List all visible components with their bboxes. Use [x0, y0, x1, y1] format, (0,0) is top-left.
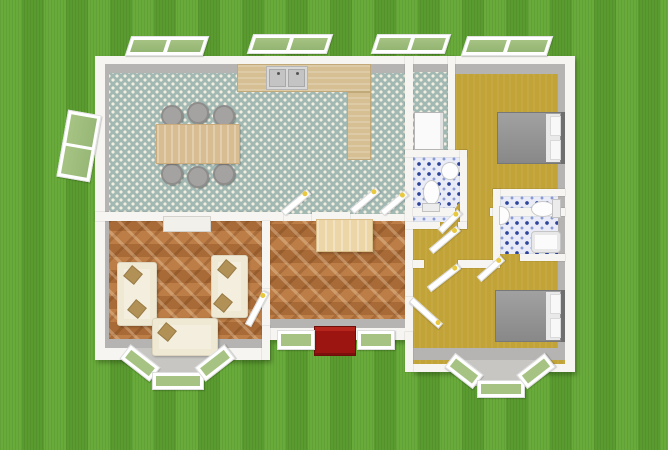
wall-shading [413, 64, 448, 72]
lawn-background [0, 0, 668, 450]
wall-shading [105, 221, 109, 348]
bed-headboard [561, 290, 565, 342]
dining-chair[interactable] [161, 163, 183, 185]
wall-segment [458, 222, 467, 229]
door-handle [259, 292, 266, 299]
door-handle [451, 227, 458, 234]
dining-chair[interactable] [187, 166, 209, 188]
bed-pillow [550, 116, 561, 136]
window-glass [507, 40, 548, 52]
wc-toilet-bowl[interactable] [423, 180, 440, 205]
wall-segment [448, 56, 455, 156]
window-glass [167, 40, 204, 52]
bay-window[interactable] [477, 380, 525, 398]
window-glass [411, 38, 446, 50]
awning-window[interactable] [461, 36, 553, 56]
tv-cabinet[interactable] [163, 216, 211, 232]
awning-window[interactable] [247, 34, 333, 54]
bathtub[interactable] [531, 231, 561, 253]
window-glass [66, 114, 97, 147]
window-glass [481, 384, 521, 394]
entrance-window[interactable] [357, 330, 395, 350]
bed-top-bedroom[interactable] [497, 112, 563, 164]
door-handle [399, 192, 406, 199]
wall-shading [455, 64, 565, 74]
bed-headboard [561, 112, 565, 164]
wall-segment [405, 222, 440, 229]
wall-segment [405, 56, 413, 296]
window-glass [61, 145, 92, 178]
awning-window[interactable] [125, 36, 209, 56]
wall-segment [405, 332, 413, 372]
wc-washbasin[interactable] [441, 162, 459, 180]
entrance-mat[interactable] [314, 326, 356, 356]
wall-segment [262, 221, 270, 288]
sink-basin [269, 69, 286, 87]
dining-chair[interactable] [187, 102, 209, 124]
wall-segment [520, 254, 565, 261]
hall-console-table[interactable] [316, 219, 373, 252]
bed-bottom-bedroom[interactable] [495, 290, 563, 342]
bed-pillow [550, 318, 561, 338]
refrigerator[interactable] [414, 112, 444, 150]
bay-window[interactable] [152, 372, 204, 390]
window-glass [376, 38, 411, 50]
wc-toilet-tank [422, 203, 440, 212]
window-glass [466, 40, 507, 52]
bed-pillow [550, 140, 561, 160]
window-glass [156, 376, 200, 386]
window-glass [281, 334, 311, 346]
wall-segment [413, 260, 424, 268]
wall-segment [262, 326, 270, 360]
kitchen-sink[interactable] [266, 66, 308, 90]
entrance-window[interactable] [277, 330, 315, 350]
window-glass [130, 40, 167, 52]
wall-shading [105, 73, 109, 214]
bed-pillow [550, 294, 561, 314]
window-glass [361, 334, 391, 346]
door-handle [495, 257, 502, 264]
door-handle [452, 211, 459, 218]
kitchen-counter[interactable] [347, 92, 371, 160]
window-glass [252, 38, 290, 50]
door-handle [301, 190, 308, 197]
wall-segment [405, 150, 467, 157]
sink-basin [288, 69, 305, 87]
door-handle [370, 188, 377, 195]
bathroom-toilet-tank [552, 199, 561, 218]
wall-segment [493, 189, 500, 261]
door-handle [451, 265, 458, 272]
wall-segment [460, 150, 467, 229]
awning-window[interactable] [371, 34, 451, 54]
wall-segment [493, 189, 565, 196]
window-glass [290, 38, 328, 50]
dining-table[interactable] [156, 124, 240, 164]
dining-chair[interactable] [213, 163, 235, 185]
